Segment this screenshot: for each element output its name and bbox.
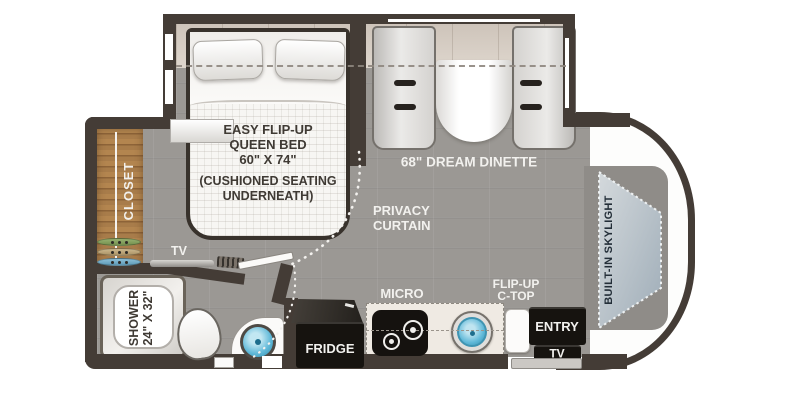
kitchen-sink-drain xyxy=(470,331,475,336)
bed-label: EASY FLIP-UP QUEEN BED 60" X 74" (CUSHIO… xyxy=(199,122,336,204)
wall-bed-dinette-partition xyxy=(350,20,366,166)
flipup-ctop xyxy=(505,309,530,353)
bed-label-line3: 60" X 74" xyxy=(199,152,336,167)
bed-label-line2: QUEEN BED xyxy=(199,137,336,152)
wall-bottom-right xyxy=(582,354,627,369)
bed-label-line1: EASY FLIP-UP xyxy=(199,122,336,137)
armrest-left-1 xyxy=(394,80,416,86)
armrest-left-2 xyxy=(394,104,416,110)
dinette-bench-left xyxy=(372,26,436,150)
bed-label-spacer xyxy=(199,167,336,174)
flipup-label: FLIP-UP C-TOP xyxy=(493,278,540,302)
skylight-label: BUILT-IN SKYLIGHT xyxy=(603,195,615,304)
cab-dash-area xyxy=(584,166,668,330)
armrest-right-2 xyxy=(520,104,542,110)
burner-left-dot xyxy=(389,339,394,344)
window-gap-bedroom-1 xyxy=(165,34,173,60)
hanger-tan xyxy=(97,248,141,256)
hanger-blue xyxy=(97,258,141,266)
window-gap-bedroom-2 xyxy=(165,70,173,104)
shower-label-line1: SHOWER xyxy=(127,290,141,346)
shower-label-line2: 24" X 32" xyxy=(141,290,155,346)
bedroom-tv-label: TV xyxy=(171,245,187,259)
fridge-label: FRIDGE xyxy=(305,342,354,356)
window-gap-dinette xyxy=(388,19,540,22)
pillow-left xyxy=(192,39,263,81)
counter-dashed-line xyxy=(366,330,504,331)
burner-right-dot xyxy=(410,327,416,333)
privacy-line1: PRIVACY xyxy=(373,204,431,219)
entry-label: ENTRY xyxy=(535,320,579,334)
rv-floorplan: CLOSET EASY FLIP-UP QUEEN BED 60" X 74" … xyxy=(0,0,800,400)
privacy-line2: CURTAIN xyxy=(373,219,431,234)
hanger-green xyxy=(97,238,141,246)
entry-tv-label: TV xyxy=(549,347,564,360)
fridge-top xyxy=(291,299,363,323)
slideout-dashed-line xyxy=(176,65,566,67)
dinette-table xyxy=(436,60,512,142)
bedroom-tv xyxy=(150,260,214,267)
pillow-right xyxy=(274,39,345,81)
bathroom-step xyxy=(214,357,234,368)
blanket-fold xyxy=(190,100,346,112)
flipup-label-line2: C-TOP xyxy=(493,290,540,302)
dinette-label: 68" DREAM DINETTE xyxy=(401,156,537,171)
privacy-curtain-label: PRIVACY CURTAIN xyxy=(373,204,431,233)
bed-label-sub2: UNDERNEATH) xyxy=(199,189,336,204)
closet-label: CLOSET xyxy=(122,162,136,221)
armrest-right-1 xyxy=(520,80,542,86)
bathroom-sink-drain xyxy=(255,339,261,345)
entry-step xyxy=(511,358,582,369)
bed-label-sub1: (CUSHIONED SEATING xyxy=(199,174,336,189)
window-gap-bottom xyxy=(262,356,282,368)
wall-top-right xyxy=(563,113,630,127)
shower-label: SHOWER 24" X 32" xyxy=(127,290,155,346)
wall-left xyxy=(85,117,97,362)
micro-label: MICRO xyxy=(380,287,423,301)
window-gap-right xyxy=(565,38,569,108)
